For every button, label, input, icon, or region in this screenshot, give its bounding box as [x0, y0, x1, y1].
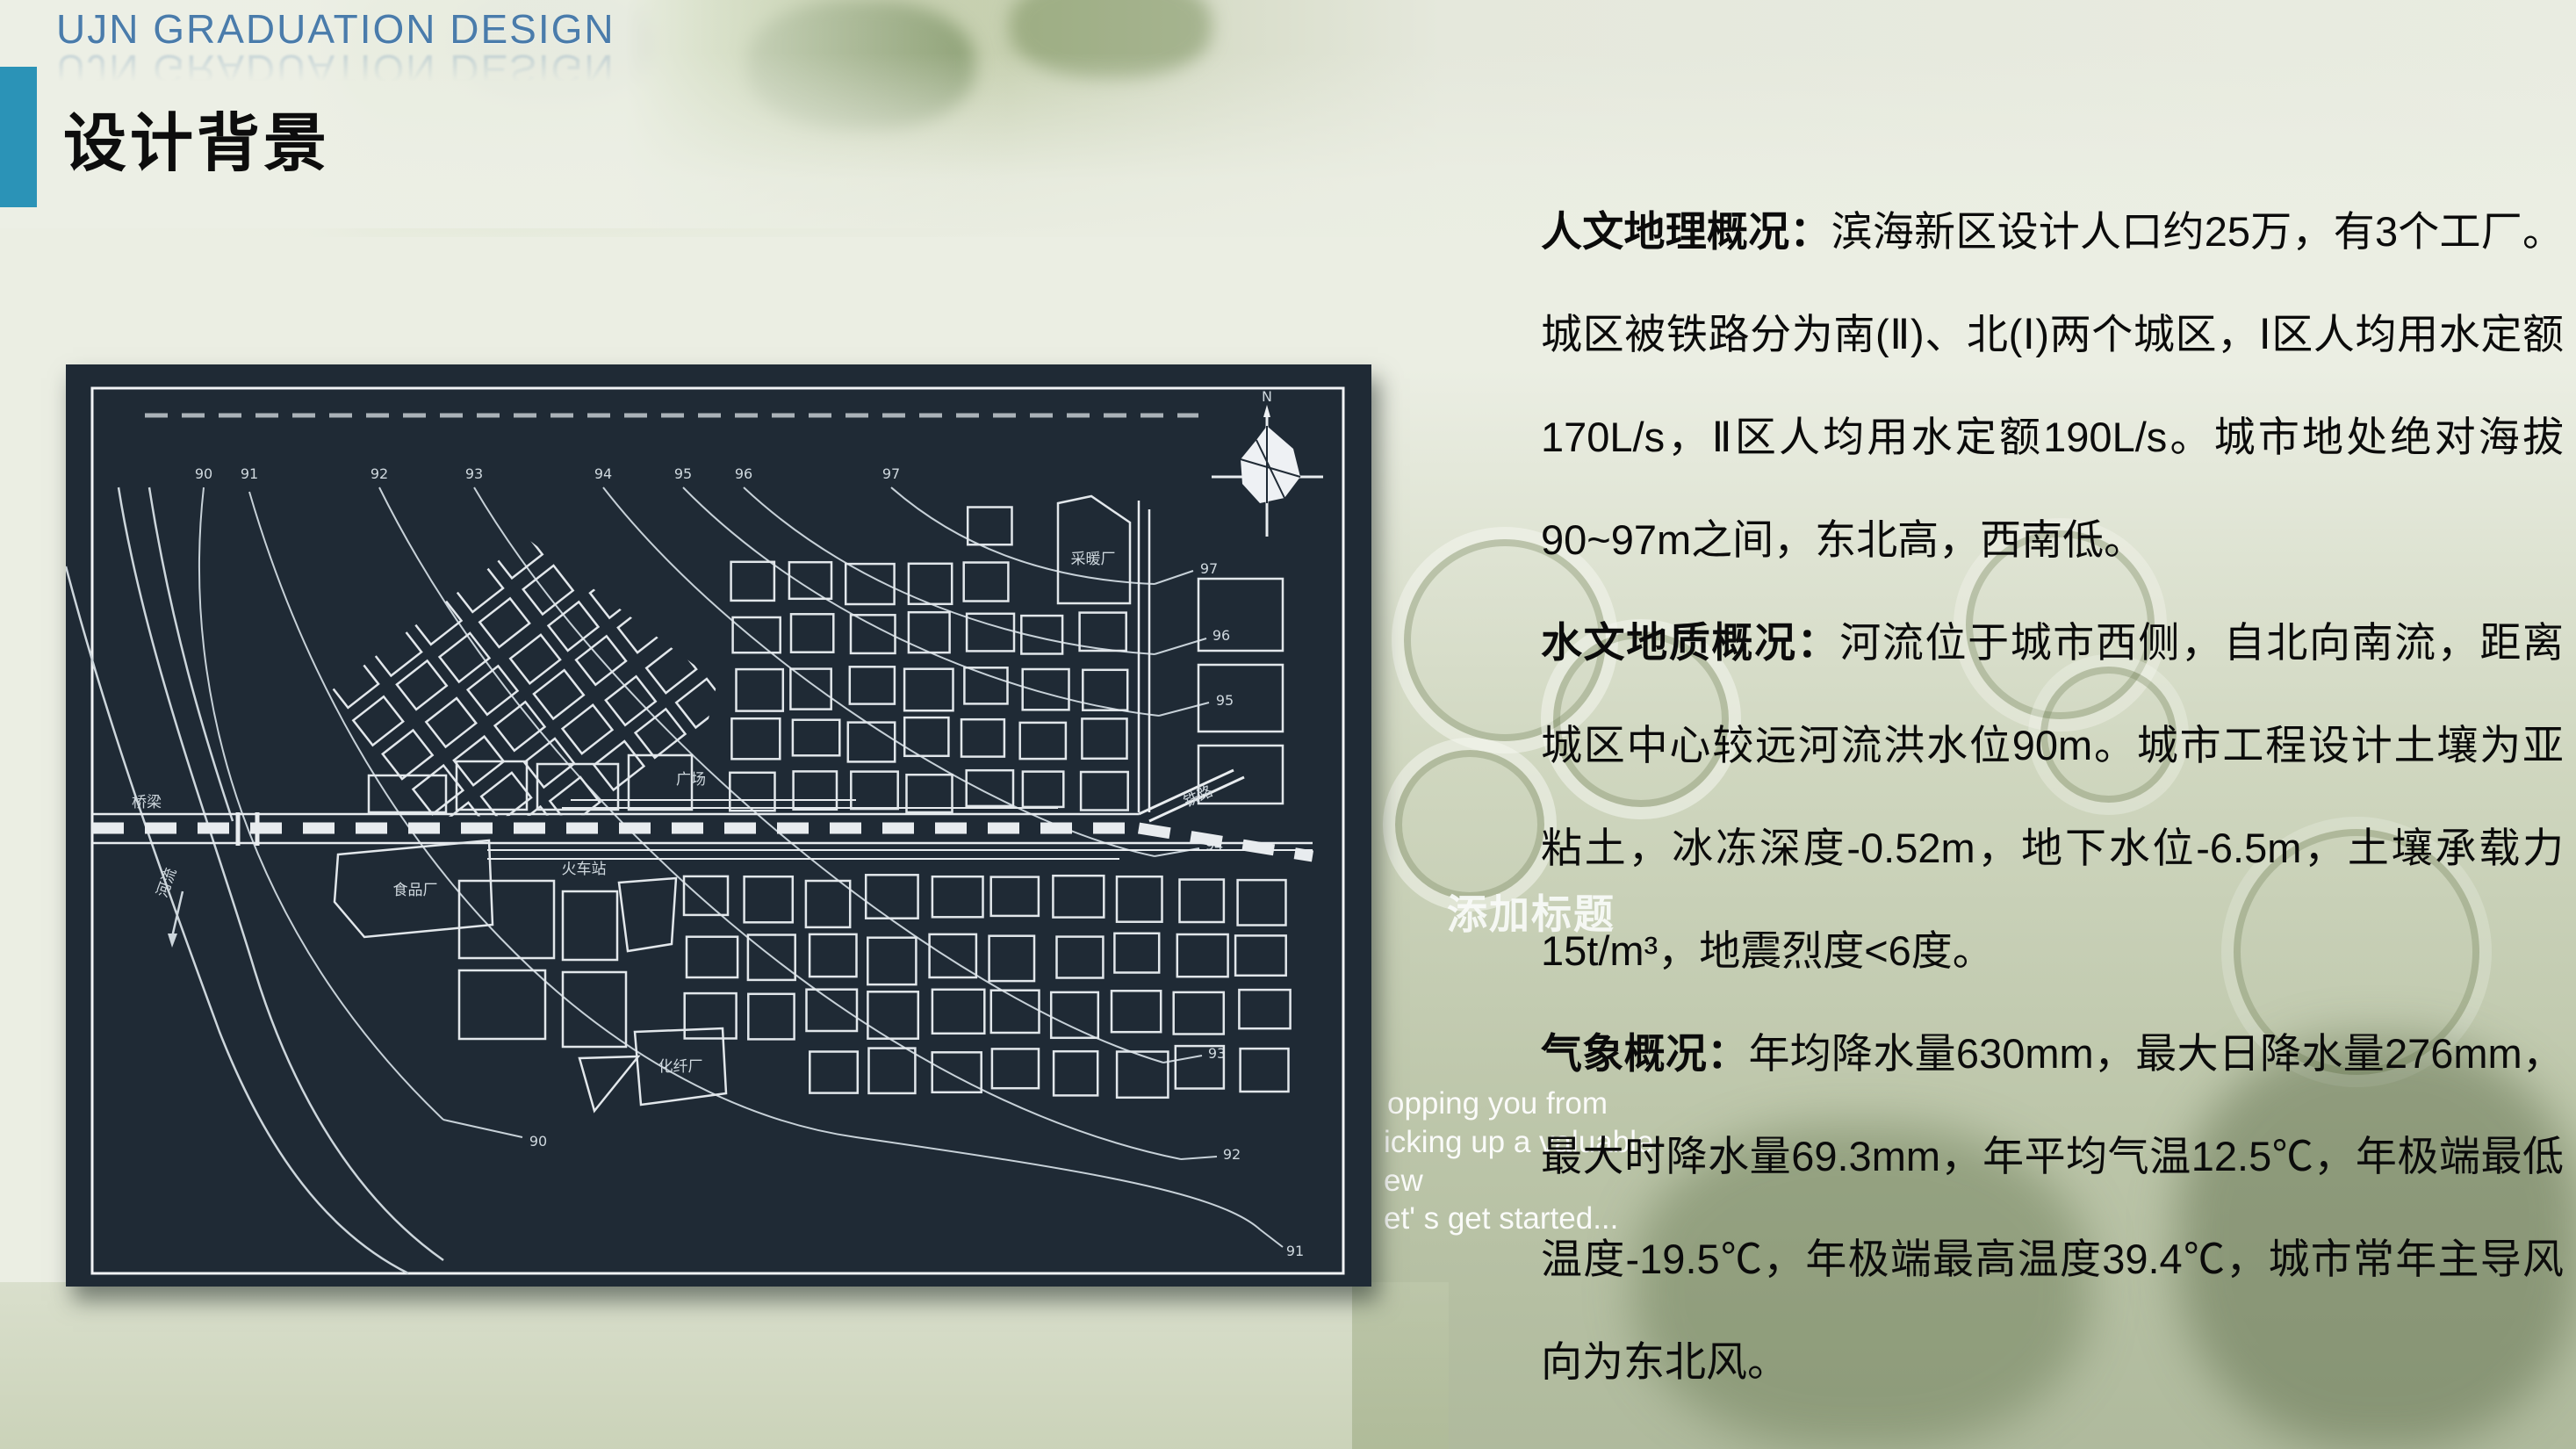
paragraph-lead: 人文地理概况：	[1541, 208, 1831, 255]
ghost-text-line: ew	[1384, 1164, 1423, 1199]
paragraph-meteorology: 气象概况：年均降水量630mm，最大日降水量276mm，最大时降水量69.3mm…	[1541, 1002, 2564, 1413]
brand-title-reflection: UJN GRADUATION DESIGN	[56, 46, 615, 93]
contour-label: 91	[241, 465, 258, 482]
heating-plant-label: 采暖厂	[1071, 551, 1116, 568]
contour-label: 97	[1200, 560, 1218, 577]
contour-label: 94	[594, 465, 612, 482]
contour-label: 90	[529, 1133, 547, 1150]
contour-label: 95	[1216, 692, 1234, 709]
contour-label: 92	[1223, 1146, 1241, 1163]
paragraph-body: 年均降水量630mm，最大日降水量276mm，最大时降水量69.3mm，年平均气…	[1541, 1030, 2564, 1385]
bridge-label: 桥梁	[132, 794, 162, 811]
paragraph-body: 河流位于城市西侧，自北向南流，距离城区中心较远河流洪水位90m。城市工程设计土壤…	[1541, 619, 2564, 974]
square-label: 广场	[676, 771, 706, 789]
contour-label: 93	[465, 465, 483, 482]
paragraph-lead: 水文地质概况：	[1541, 619, 1839, 666]
paragraph-lead: 气象概况：	[1541, 1030, 1748, 1077]
north-label: N	[1262, 388, 1272, 405]
train-station-label: 火车站	[562, 861, 607, 878]
paragraph-geography: 人文地理概况：滨海新区设计人口约25万，有3个工厂。城区被铁路分为南(Ⅱ)、北(…	[1541, 180, 2564, 591]
contour-label: 91	[1286, 1243, 1304, 1259]
page-title: 设计背景	[63, 91, 330, 184]
aerial-photo-bottom-wash	[0, 1282, 1449, 1449]
city-plan-drawing: 90 91 92 93 94 95 96 97 97 96 95 94 93 9…	[66, 364, 1371, 1287]
city-plan-map: 90 91 92 93 94 95 96 97 97 96 95 94 93 9…	[66, 364, 1371, 1287]
contour-label: 92	[371, 465, 388, 482]
food-factory-label: 食品厂	[393, 882, 438, 899]
contour-label: 97	[882, 465, 900, 482]
accent-bar	[0, 67, 37, 207]
paragraph-hydrogeology: 水文地质概况：河流位于城市西侧，自北向南流，距离城区中心较远河流洪水位90m。城…	[1541, 591, 2564, 1002]
contour-label: 96	[735, 465, 752, 482]
contour-label: 96	[1212, 627, 1230, 644]
body-text-column: 人文地理概况：滨海新区设计人口约25万，有3个工厂。城区被铁路分为南(Ⅱ)、北(…	[1541, 180, 2564, 1413]
paragraph-body: 滨海新区设计人口约25万，有3个工厂。城区被铁路分为南(Ⅱ)、北(Ⅰ)两个城区，…	[1541, 208, 2564, 563]
chemical-fiber-plant-label: 化纤厂	[658, 1058, 703, 1076]
contour-label: 95	[674, 465, 692, 482]
slide: UJN GRADUATION DESIGN UJN GRADUATION DES…	[0, 0, 2576, 1449]
contour-label: 90	[195, 465, 212, 482]
